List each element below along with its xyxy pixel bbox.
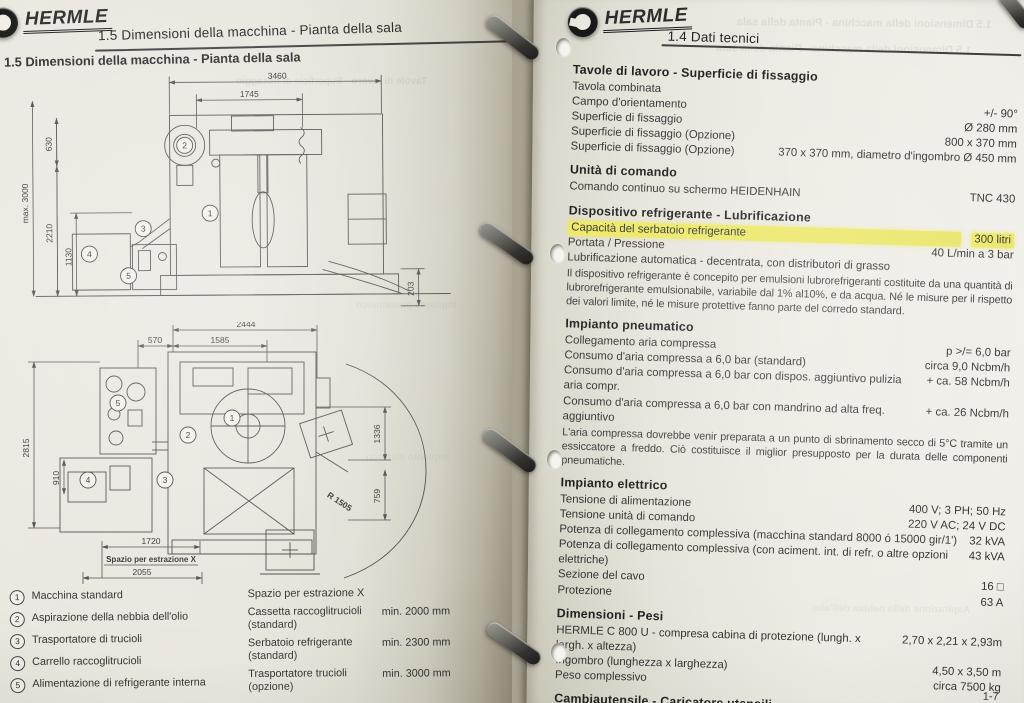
dim-2055: 2055 [133,567,152,577]
svg-text:5: 5 [126,271,131,281]
hermle-logo-left: HERMLE [0,4,113,38]
left-header-rule [95,40,509,51]
right-header-rule [661,44,1021,56]
legend: 1Macchina standard2Aspirazione della neb… [10,586,503,701]
dim-2444: 2444 [237,322,256,329]
callout-number: 5 [10,678,25,693]
dim-1745: 1745 [240,89,259,99]
right-header-title: 1.4 Dati tecnici [667,29,759,47]
svg-text:4: 4 [86,475,91,485]
spec-section: Dimensioni - PesiHERMLE C 800 U - compre… [555,606,1003,697]
callout-number: 1 [10,590,25,605]
machine-elevation-outline [34,114,450,297]
scanned-manual-spread: HERMLE 1.5 Dimensioni della macchina - P… [0,0,1024,703]
spec-value: 2,70 x 2,21 x 2,93m [901,633,1002,666]
spec-value: TNC 430 [969,192,1015,208]
dim-630: 630 [44,137,54,152]
extraction-label-main: Serbatoio refrigerante [248,636,376,650]
dim-910: 910 [51,471,61,485]
dim-570: 570 [148,335,162,345]
legend-label: Carrello raccoglitrucioli [32,655,141,668]
spec-section: Unità di comandoComando continuo su sche… [569,163,1016,208]
extraction-rows: Cassetta raccoglitrucioli(standard)min. … [248,604,503,693]
punch-hole [551,643,566,662]
svg-text:3: 3 [163,475,168,485]
dim-1720: 1720 [142,536,161,546]
extraction-value: min. 2300 mm [382,635,451,661]
svg-text:2: 2 [182,140,187,150]
spec-value: 16 □ [981,580,1004,596]
legend-item: 2Aspirazione della nebbia dell'olio [10,610,248,627]
svg-text:5: 5 [116,398,121,408]
ghost-text: 1.5 Dimensioni della macchina - Pianta d… [737,16,992,31]
dim-2210: 2210 [44,224,54,243]
legend-item: 3Trasportatore di trucioli [10,632,248,649]
svg-text:1: 1 [208,208,213,218]
extraction-value: min. 2000 mm [382,604,451,630]
dim-759: 759 [372,489,382,503]
left-section-title: 1.5 Dimensioni della macchina - Pianta d… [4,49,301,69]
legend-item: 1Macchina standard [10,588,248,605]
spec-value: Ø 280 mm [964,121,1018,138]
extraction-row: Trasportatore trucioli(opzione)min. 3000… [248,666,502,693]
punch-hole [556,38,571,57]
spec-value: 300 litri [971,232,1014,248]
dim-1336: 1336 [372,424,382,443]
legend-items: 1Macchina standard2Aspirazione della neb… [10,588,249,701]
elevation-dimensions: 3460 1745 max. 3000 630 2210 1130 203 [19,70,425,309]
callout-number: 4 [10,656,25,671]
dim-3460: 3460 [268,71,287,81]
dim-r1505: R 1505 [325,490,354,513]
extraction-row: Serbatoio refrigerante(standard)min. 230… [248,635,502,662]
spec-value: 63 A [980,595,1003,611]
extraction-label: Serbatoio refrigerante(standard) [248,636,376,662]
extraction-label: Trasportatore trucioli(opzione) [248,667,376,693]
spec-section: Tavole di lavoro - Superficie di fissagg… [570,62,1019,168]
right-page-photo: HERMLE 1.4 Dati tecnici 1.5 Dimensioni d… [512,0,1024,703]
hermle-ring-icon [567,6,598,37]
svg-text:3: 3 [141,224,146,234]
hermle-ring-icon [0,7,19,38]
extraction-label-sub: (opzione) [248,679,376,693]
legend-label: Alimentazione di refrigerante interna [32,676,206,690]
spec-section: Dispositivo refrigerante - Lubrificazion… [566,203,1015,322]
extraction-label-sub: (standard) [248,648,376,662]
svg-text:4: 4 [87,249,92,259]
left-page-photo: HERMLE 1.5 Dimensioni della macchina - P… [0,0,512,703]
left-header-title: 1.5 Dimensioni della macchina - Pianta d… [98,20,402,43]
right-page: HERMLE 1.4 Dati tecnici 1.5 Dimensioni d… [527,0,1024,703]
legend-label: Aspirazione della nebbia dell'olio [32,611,188,625]
dim-2815: 2815 [21,438,31,457]
spec-section: Impianto pneumaticoCollegamento aria com… [561,316,1011,480]
dim-max-3000: max. 3000 [20,183,30,223]
extraction-value: min. 3000 mm [382,666,451,692]
plan-callouts: 1 2 3 4 5 [80,395,240,488]
plan-view-drawing: 2444 570 1585 2815 910 1336 759 R 1505 [8,322,468,588]
spec-section: Impianto elettricoTensione di alimentazi… [557,475,1006,611]
legend-label: Macchina standard [32,589,123,602]
machine-plan-outline [60,352,426,578]
svg-text:1: 1 [230,413,235,423]
legend-item: 5Alimentazione di refrigerante interna [10,676,248,693]
elevation-callouts: 1 2 3 4 5 [81,137,219,284]
spec-value: 43 kVA [968,550,1005,581]
legend-label: Trasportatore di trucioli [32,633,142,646]
extraction-label-main: Cassetta raccoglitrucioli [248,605,376,619]
extraction-row: Cassetta raccoglitrucioli(standard)min. … [248,604,502,631]
extraction-label-main: Trasportatore trucioli [248,667,376,681]
spec-value: + ca. 26 Ncbm/h [925,405,1009,438]
dim-1130: 1130 [63,248,73,267]
punch-hole [547,450,562,469]
plan-extraction-label: Spazio per estrazione X [106,555,196,564]
extraction-label: Cassetta raccoglitrucioli(standard) [248,605,376,631]
svg-text:2: 2 [186,430,191,440]
plan-dimensions: 2444 570 1585 2815 910 1336 759 R 1505 [21,322,391,584]
elevation-drawing: 3460 1745 max. 3000 630 2210 1130 203 1 [9,68,461,319]
spec-value: 32 kVA [969,535,1005,551]
page-number: 1-7 [983,691,999,703]
dim-1585: 1585 [211,335,230,345]
extraction-label-sub: (standard) [248,617,376,631]
punch-hole [550,244,565,263]
spec-value: +/- 90° [984,107,1018,123]
callout-number: 2 [10,612,25,627]
legend-item: 4Carrello raccoglitrucioli [10,654,248,671]
tech-data-sections: Tavole di lavoro - Superficie di fissagg… [554,54,1020,703]
extraction-space: Spazio per estrazione X Cassetta raccogl… [248,586,503,699]
extraction-title: Spazio per estrazione X [248,586,502,600]
spec-value: + ca. 58 Ncbm/h [926,374,1010,407]
dim-203: 203 [406,281,416,296]
callout-number: 3 [10,634,25,649]
